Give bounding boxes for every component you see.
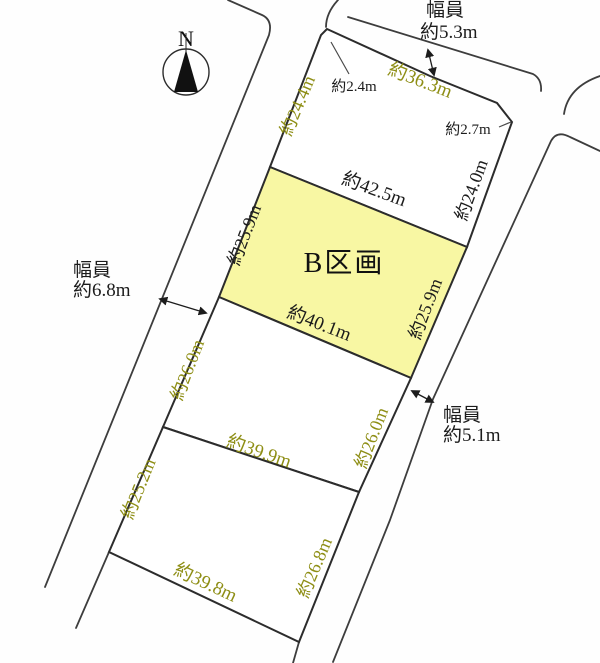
road-top-connector-north [326,0,338,27]
road-top-width-value: 約5.3m [420,21,478,43]
road-right-width-label: 幅員 約5.1m [443,404,501,446]
north-arrow-icon [174,50,198,92]
plot-map-canvas: N 幅員 約5.3m 幅員 約6.8m 幅員 約5.1m 約36.3m 約24.… [0,0,600,663]
road-left-width-value: 約6.8m [73,279,131,301]
parcel-b-name: B区画 [304,248,385,279]
road-left-width-label: 幅員 約6.8m [73,259,131,301]
compass: N [163,26,209,95]
road-right-width-value: 約5.1m [443,424,501,446]
land-plot-diagram: N 幅員 約5.3m 幅員 約6.8m 幅員 約5.1m 約36.3m 約24.… [0,0,600,663]
road-right-width-title: 幅員 [443,404,481,426]
road-intersection-ne-corner [564,76,600,114]
road-right-west-edge-extension [293,642,299,663]
road-top-width-label: 幅員 約5.3m [420,0,478,43]
road-left-east-edge-extension [76,552,109,628]
dim-corner-cut-left: 約2.4m [331,78,377,95]
dim-corner-cut-right: 約2.7m [445,121,491,138]
road-top-width-arrow [428,50,434,75]
road-top-width-title: 幅員 [426,0,464,21]
road-left-width-arrow [160,299,206,313]
road-left-width-title: 幅員 [73,259,111,281]
road-right-width-arrow [412,391,433,402]
